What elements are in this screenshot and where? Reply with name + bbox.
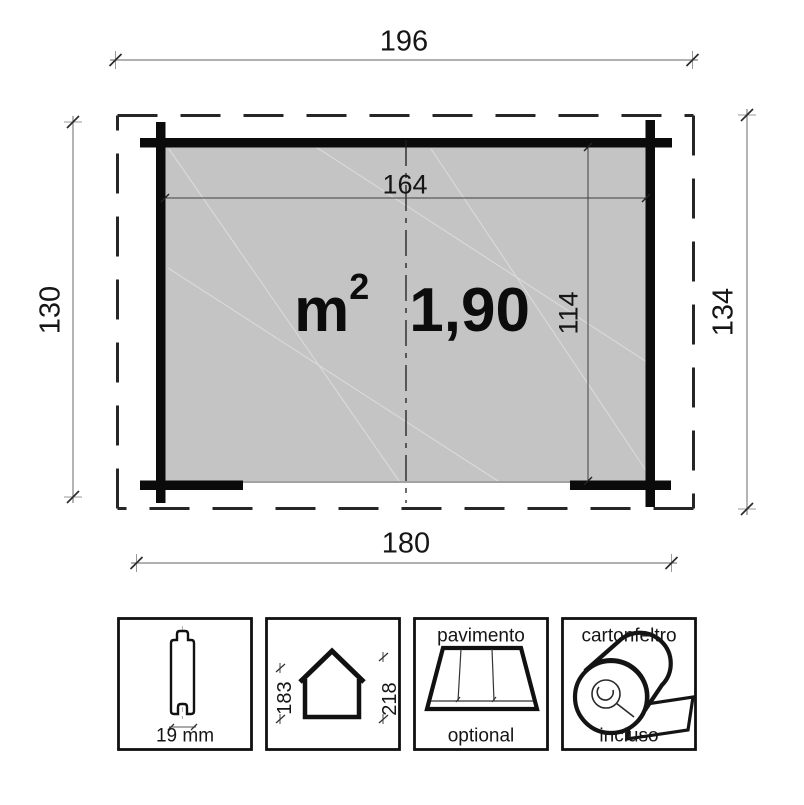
wall-right <box>646 120 656 507</box>
floor-title-label: pavimento <box>437 627 525 646</box>
dim-label-inner-depth: 114 <box>556 291 583 334</box>
felt-title-label: cartonfeltro <box>581 627 676 646</box>
plank-thickness-label: 19 mm <box>156 727 214 746</box>
wall-left <box>156 122 166 503</box>
dim-label-depth-right: 134 <box>710 288 739 336</box>
area-unit: m <box>294 280 349 342</box>
dim-label-inner-width: 164 <box>382 172 427 199</box>
dimension-depth-right <box>738 109 756 515</box>
shed-floor-plan-drawing: 196 164 130 134 114 180 m21,90 19 mm 183… <box>0 0 804 805</box>
area-label: m21,90 <box>294 280 530 342</box>
house-ridge-height-label: 218 <box>380 682 400 715</box>
area-value: 1,90 <box>409 280 530 342</box>
dim-label-depth-left: 130 <box>37 286 66 334</box>
floor-note-label: optional <box>448 727 515 746</box>
area-exponent: 2 <box>349 269 369 305</box>
dim-label-wall-width: 180 <box>382 530 430 559</box>
wall-bottom-left <box>140 481 243 491</box>
plan-linework <box>0 0 804 805</box>
house-eave-height-label: 183 <box>275 681 295 714</box>
dim-label-roof-width: 196 <box>380 28 428 57</box>
dimension-depth-left <box>64 116 82 503</box>
plank-profile-icon <box>171 631 194 714</box>
wall-bottom-right <box>570 481 671 491</box>
floor-panel-icon <box>427 648 537 709</box>
felt-note-label: incluso <box>599 727 658 746</box>
